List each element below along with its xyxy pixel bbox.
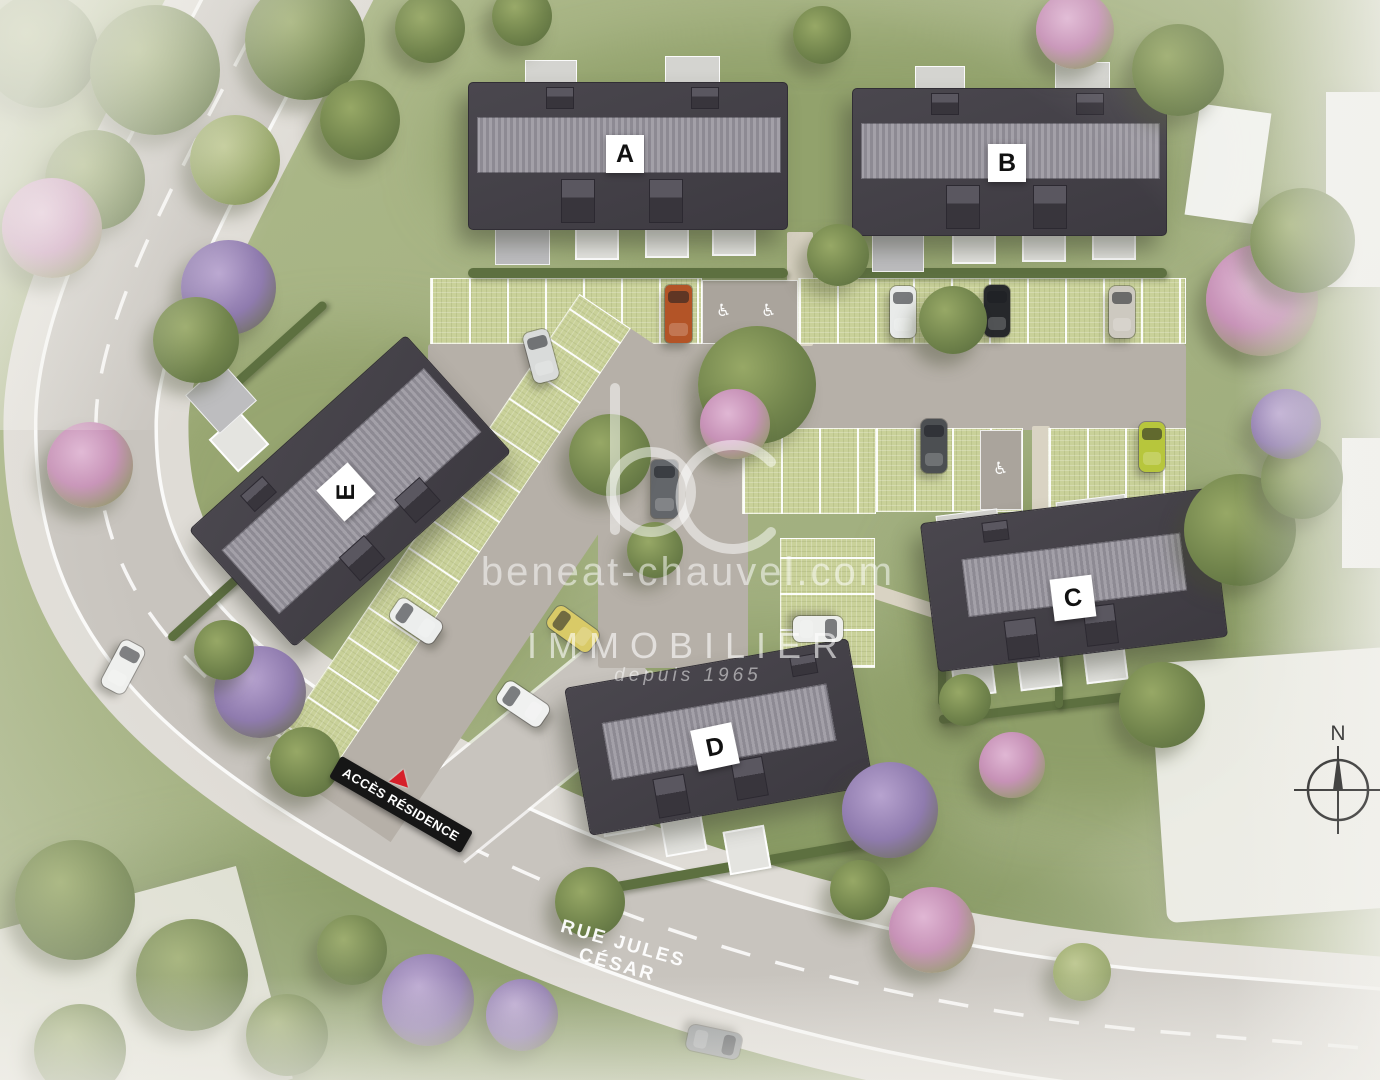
watermark-logo-bc-icon bbox=[573, 380, 803, 555]
tree bbox=[1036, 0, 1114, 69]
tree bbox=[919, 286, 987, 354]
tree bbox=[979, 732, 1045, 798]
tree bbox=[1250, 188, 1355, 293]
tree bbox=[153, 297, 239, 383]
tree bbox=[0, 0, 98, 108]
tree bbox=[90, 5, 220, 135]
tree bbox=[34, 1004, 126, 1080]
tree bbox=[382, 954, 474, 1046]
watermark-brand: IMMOBILIER bbox=[488, 625, 888, 667]
tree bbox=[246, 994, 328, 1076]
tree bbox=[830, 860, 890, 920]
tree bbox=[136, 919, 248, 1031]
watermark-website: beneat-chauvel.com bbox=[388, 550, 988, 595]
tree bbox=[486, 979, 558, 1051]
tree bbox=[492, 0, 552, 46]
tree bbox=[270, 727, 340, 797]
tree bbox=[807, 224, 869, 286]
tree bbox=[889, 887, 975, 973]
compass-rose-icon bbox=[1292, 744, 1380, 836]
tree bbox=[1251, 389, 1321, 459]
tree bbox=[793, 6, 851, 64]
watermark-tagline: depuis 1965 bbox=[488, 665, 888, 687]
tree bbox=[317, 915, 387, 985]
tree bbox=[194, 620, 254, 680]
compass-north-label: N bbox=[1292, 722, 1380, 746]
tree bbox=[190, 115, 280, 205]
tree bbox=[320, 80, 400, 160]
tree bbox=[395, 0, 465, 63]
watermark: beneat-chauvel.com IMMOBILIER depuis 196… bbox=[388, 380, 988, 690]
tree bbox=[1119, 662, 1205, 748]
tree bbox=[842, 762, 938, 858]
tree bbox=[2, 178, 102, 278]
tree bbox=[47, 422, 133, 508]
tree bbox=[1132, 24, 1224, 116]
compass: N bbox=[1292, 722, 1380, 837]
tree bbox=[15, 840, 135, 960]
site-plan-rendering: ♿ ♿ ♿ bbox=[0, 0, 1380, 1080]
tree bbox=[1053, 943, 1111, 1001]
